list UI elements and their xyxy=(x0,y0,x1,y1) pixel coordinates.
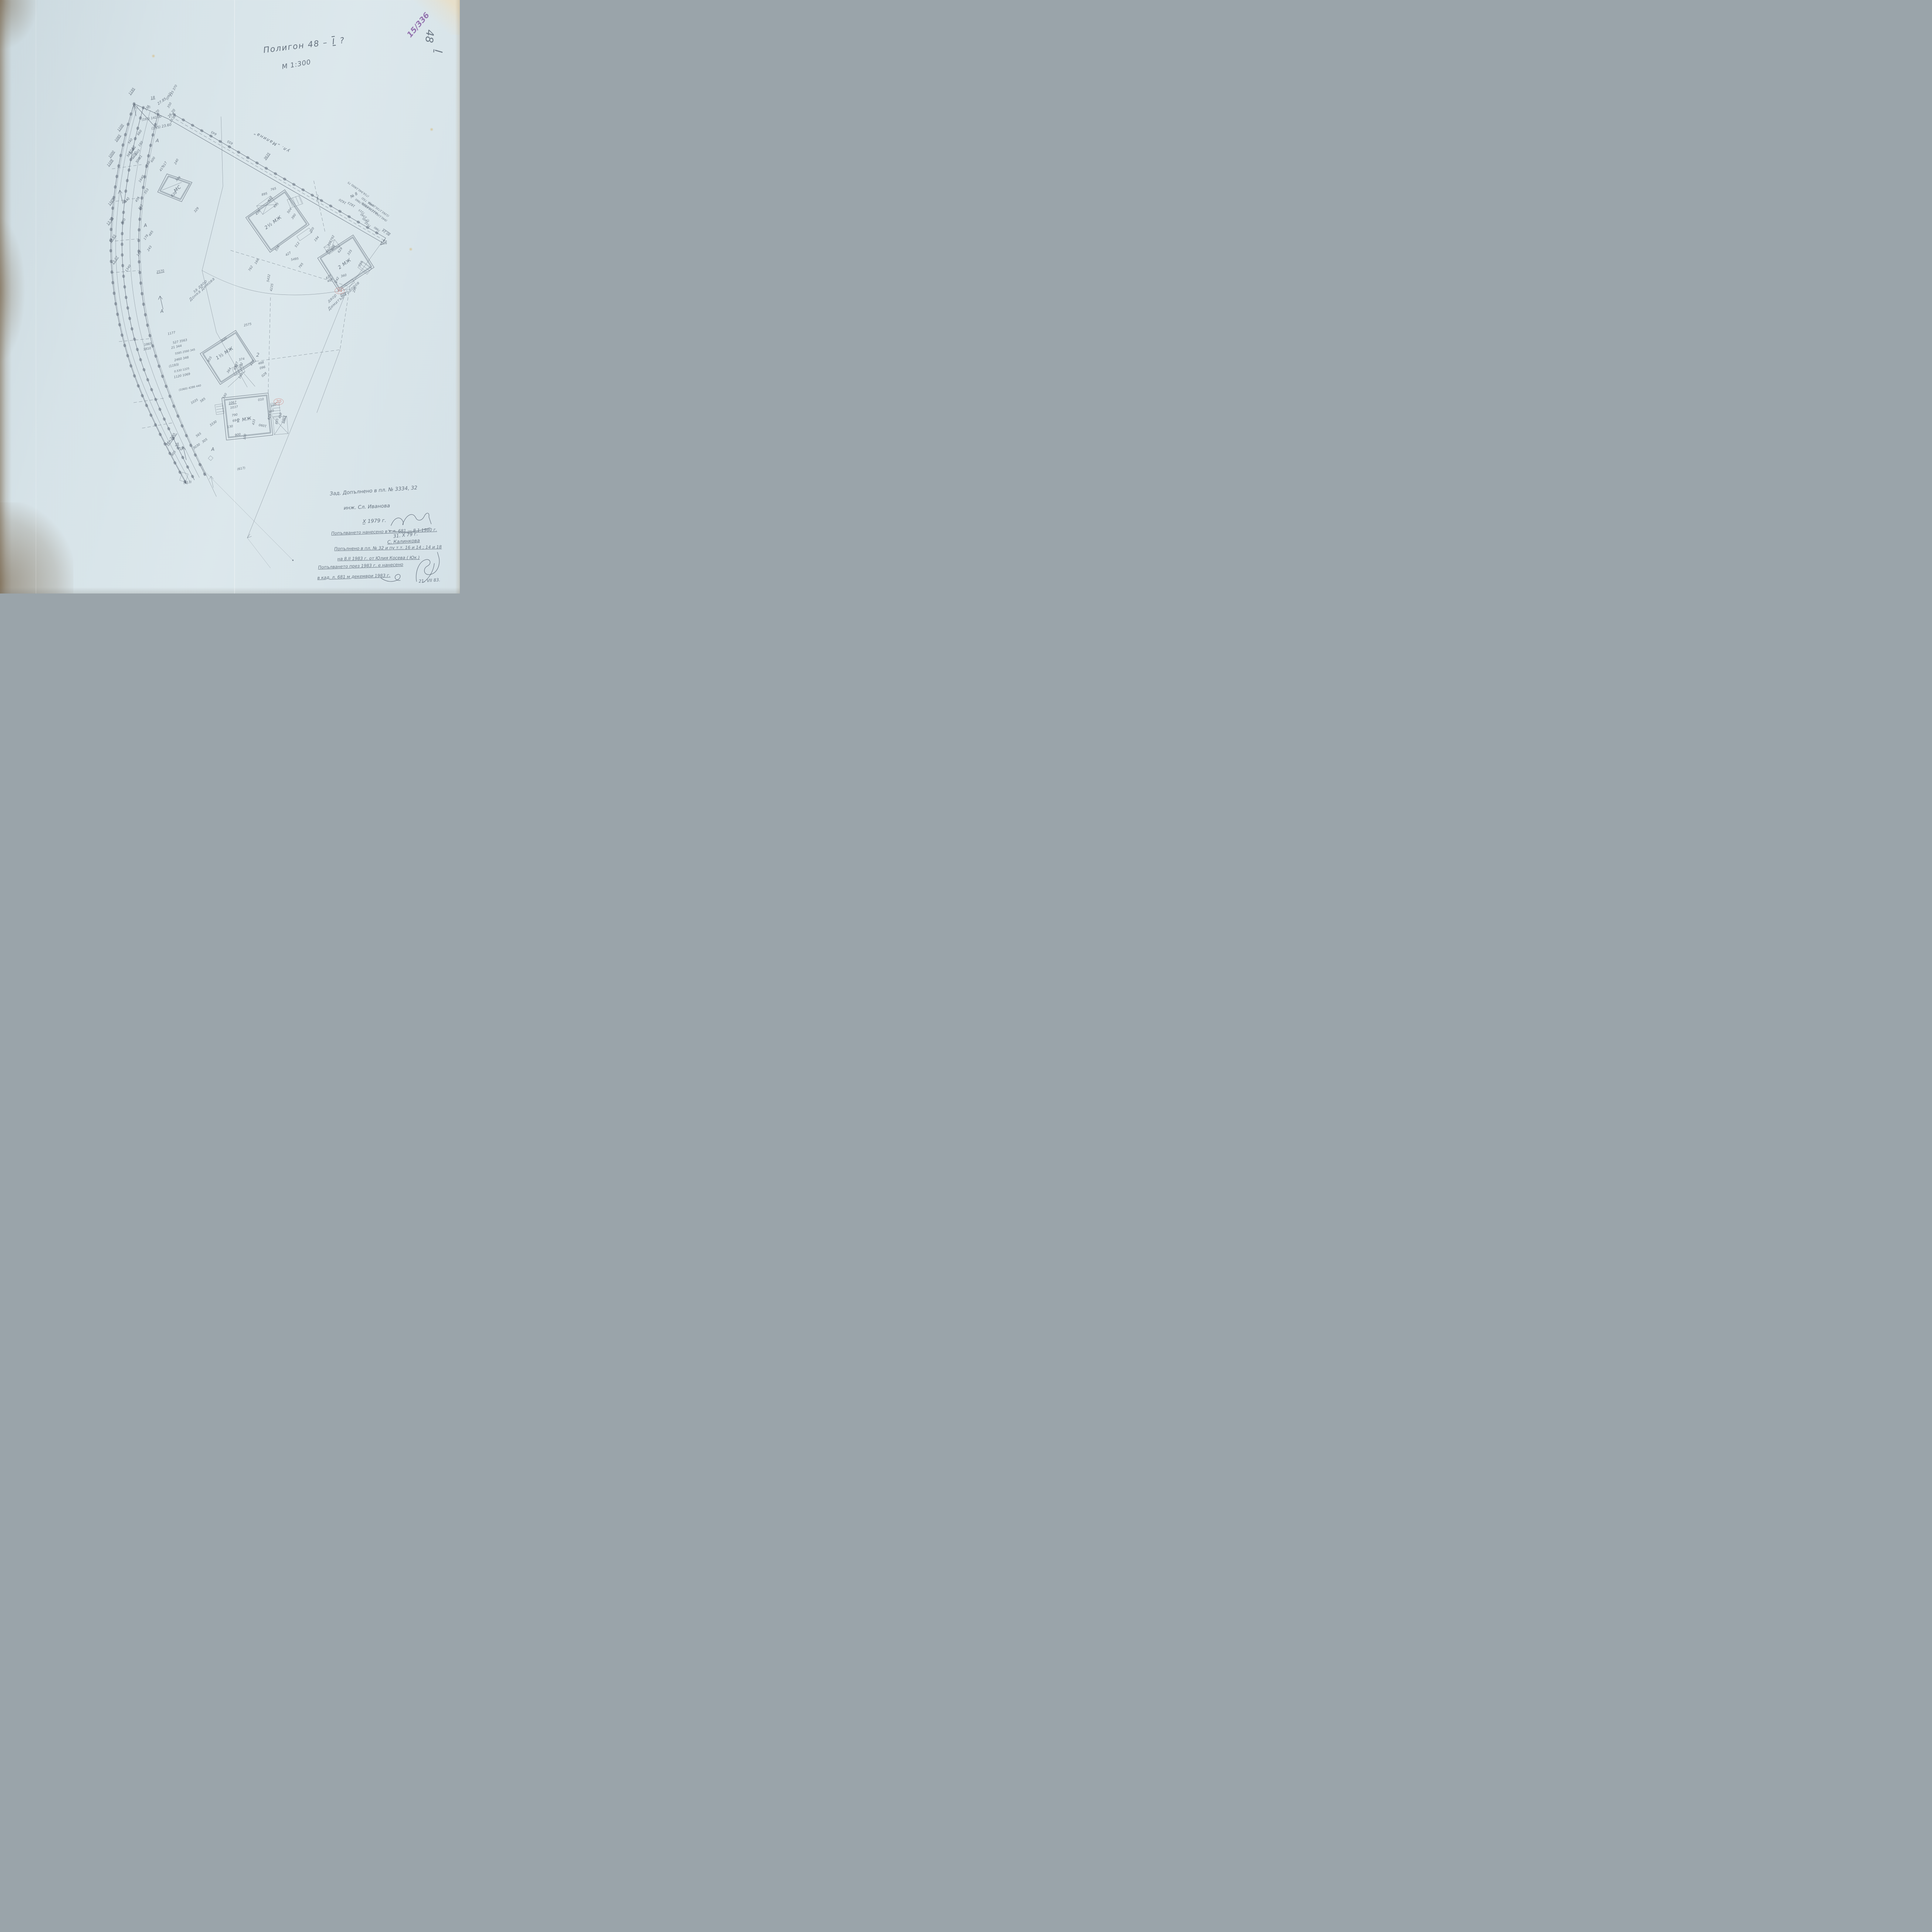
title-question-mark: ? xyxy=(339,36,345,45)
map-label: А xyxy=(160,308,164,314)
map-label: А xyxy=(156,138,159,143)
map-label: (ел.) xyxy=(316,195,319,201)
map-label: 38 xyxy=(175,442,179,446)
note-1979-line3: X̲ 1979 г. xyxy=(362,518,386,525)
map-label: А xyxy=(211,446,214,452)
map-label: 2 xyxy=(256,352,260,358)
map-label: 116 xyxy=(381,241,387,245)
red-parcel-stamp: 20 xyxy=(274,398,284,405)
red-parcel-stamp: 34 xyxy=(335,287,345,294)
title-roman-numeral: I xyxy=(330,37,337,47)
corner-sheet-number: 48 xyxy=(423,29,436,43)
scanned-cadastral-sheet: 11951827.85(092)235 37035033577026.2025.… xyxy=(0,0,460,594)
plan-linework xyxy=(0,0,460,594)
